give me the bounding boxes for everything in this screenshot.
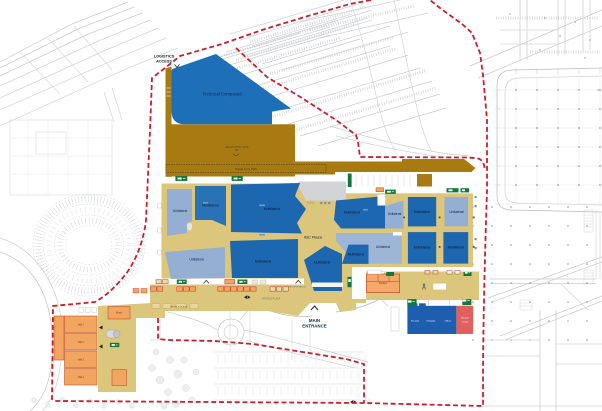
svg-text:G.O.S.: G.O.S.	[307, 202, 315, 205]
svg-text:MAIN: MAIN	[309, 318, 320, 323]
svg-text:Hall 1: Hall 1	[78, 324, 85, 327]
svg-text:Multilateral: Multilateral	[448, 246, 465, 250]
svg-text:Unilateral: Unilateral	[449, 210, 464, 214]
svg-text:PROFILE PLAZA: PROFILE PLAZA	[170, 306, 187, 309]
svg-text:B2: B2	[235, 148, 239, 152]
svg-text:Kiosk: Kiosk	[116, 312, 123, 315]
svg-text:MAIN ENTRANCE: MAIN ENTRANCE	[288, 286, 307, 289]
svg-text:Multilateral: Multilateral	[255, 260, 272, 264]
svg-text:Medical: Medical	[461, 318, 469, 320]
svg-text:Multilateral: Multilateral	[344, 211, 361, 215]
svg-text:Multilateral: Multilateral	[264, 207, 281, 211]
svg-text:Center: Center	[462, 321, 469, 324]
svg-text:Delegate: Delegate	[427, 320, 437, 323]
svg-text:Hall 4: Hall 4	[78, 376, 85, 379]
svg-text:Diesel Lorry Park: Diesel Lorry Park	[235, 167, 257, 171]
svg-text:Multilateral: Multilateral	[414, 210, 431, 214]
svg-text:Multilateral: Multilateral	[414, 246, 431, 250]
svg-text:Multilateral: Multilateral	[314, 261, 331, 265]
svg-text:Multilateral: Multilateral	[202, 204, 219, 208]
svg-text:IBC Plaza: IBC Plaza	[304, 235, 323, 240]
svg-text:Unilateral: Unilateral	[376, 245, 391, 249]
svg-text:Multilateral: Multilateral	[348, 253, 365, 257]
svg-text:Technical Compound: Technical Compound	[202, 92, 242, 97]
svg-text:Hall 2: Hall 2	[78, 341, 85, 344]
svg-text:ENTRANCE: ENTRANCE	[302, 324, 326, 329]
svg-text:Pavilion: Pavilion	[379, 282, 388, 285]
svg-text:Security: Security	[411, 320, 420, 323]
svg-text:ACCESS: ACCESS	[156, 59, 172, 63]
svg-text:Unilateral: Unilateral	[173, 209, 188, 213]
svg-text:Unilateral: Unilateral	[189, 258, 204, 262]
svg-text:Unilateral: Unilateral	[388, 212, 402, 216]
svg-text:PROFILE PLAZA: PROFILE PLAZA	[262, 298, 281, 301]
svg-text:Hall 3: Hall 3	[78, 359, 85, 362]
svg-text:LOGISTICS: LOGISTICS	[154, 55, 175, 59]
svg-text:Offices: Offices	[445, 321, 453, 323]
